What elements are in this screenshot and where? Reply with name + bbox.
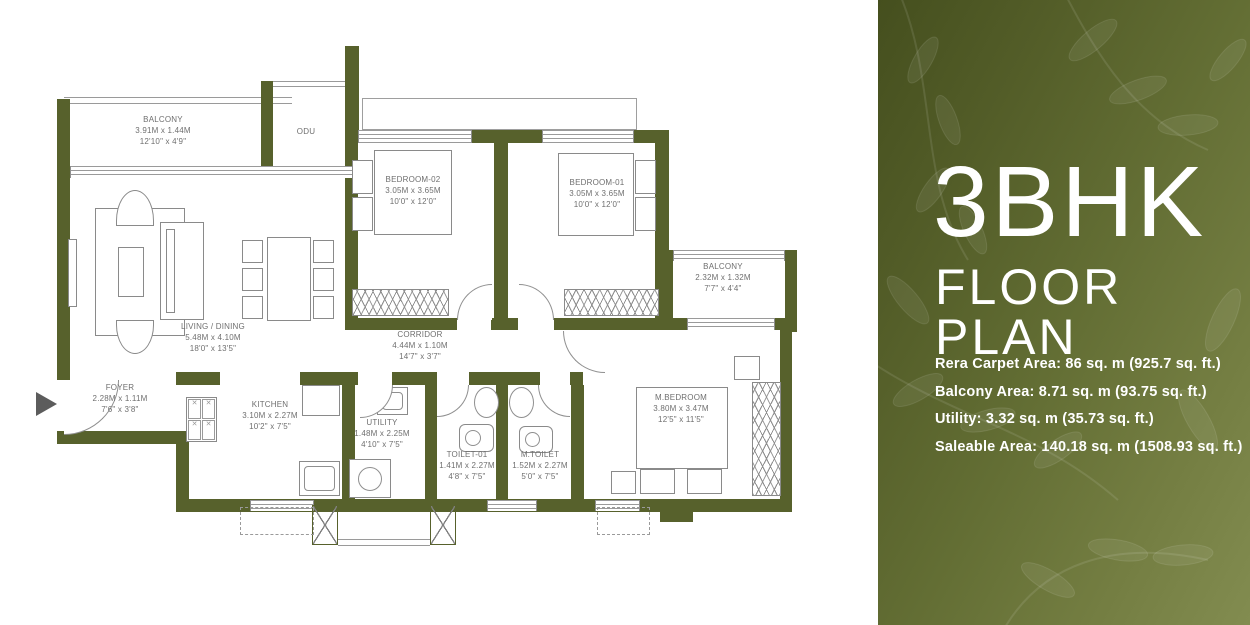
- dining-chair: [242, 296, 263, 319]
- plan-type-title: 3BHK: [933, 152, 1206, 252]
- window: [487, 500, 537, 511]
- wardrobe: [352, 289, 449, 316]
- chajja-outline: [362, 98, 637, 130]
- dining-table: [267, 237, 311, 321]
- room-label-utility: UTILITY1.48M x 2.25M4'10" x 7'5": [354, 418, 410, 450]
- dining-chair: [242, 268, 263, 291]
- dining-chair: [313, 240, 334, 263]
- wall: [554, 318, 655, 330]
- wash-basin: [474, 387, 499, 418]
- sink-basin: [304, 466, 335, 491]
- projection-outline: [240, 507, 314, 535]
- toilet-01-door-arc: [437, 385, 469, 417]
- room-label-balcony-top: BALCONY3.91M x 1.44M12'10" x 4'9": [135, 115, 191, 147]
- projection-outline: [597, 507, 650, 535]
- bedside-table: [635, 197, 656, 231]
- dining-chair: [313, 268, 334, 291]
- wc-seat: [525, 432, 540, 447]
- dining-chair: [242, 240, 263, 263]
- wall: [571, 385, 584, 512]
- room-label-corridor: CORRIDOR4.44M x 1.10M14'7" x 3'7": [392, 330, 448, 362]
- room-label-toilet-01: TOILET-011.41M x 2.27M4'8" x 7'5": [439, 450, 495, 482]
- armchair: [116, 320, 154, 354]
- duct-shaft: [312, 505, 338, 545]
- floor-plan: ✕✕✕✕ BALCONY3.91M x 1.44M12'10" x 4'9" O…: [0, 0, 878, 625]
- bedside-table: [611, 471, 636, 494]
- balcony-railing: [64, 97, 292, 104]
- odu-railing: [273, 81, 353, 87]
- room-label-bedroom-01: BEDROOM-013.05M x 3.65M10'0" x 12'0": [569, 178, 625, 210]
- room-label-foyer: FOYER2.28M x 1.11M7'6" x 3'8": [93, 383, 148, 415]
- m-toilet-door-arc: [538, 385, 570, 417]
- hob-burners: ✕✕✕✕: [186, 397, 217, 442]
- door-opening: [437, 372, 469, 385]
- wall: [494, 133, 508, 330]
- pillow: [687, 469, 722, 494]
- balcony-area: Balcony Area: 8.71 sq. m (93.75 sq. ft.): [935, 379, 1242, 407]
- pillow: [640, 469, 675, 494]
- toilet-wc: [459, 424, 494, 452]
- plan-subtitle: FLOOR PLAN: [935, 262, 1250, 362]
- window: [358, 130, 472, 143]
- wardrobe: [564, 289, 659, 316]
- dresser: [734, 356, 760, 380]
- wall: [491, 318, 518, 330]
- wall: [660, 512, 693, 522]
- armchair: [116, 190, 154, 226]
- toilet-wc: [519, 426, 553, 453]
- utility-area: Utility: 3.32 sq. m (35.73 sq. ft.): [935, 406, 1242, 434]
- m-bedroom-door-arc: [563, 331, 605, 373]
- bedside-table: [635, 160, 656, 194]
- duct-shaft: [430, 505, 456, 545]
- door-opening: [358, 372, 392, 385]
- entrance-arrow-icon: [36, 392, 57, 416]
- kitchen-counter: [302, 385, 340, 416]
- window: [687, 318, 775, 330]
- window: [542, 130, 634, 143]
- room-label-kitchen: KITCHEN3.10M x 2.27M10'2" x 7'5": [242, 400, 298, 432]
- wall: [775, 318, 797, 330]
- info-panel: 3BHK FLOOR PLAN Rera Carpet Area: 86 sq.…: [878, 0, 1250, 625]
- wall: [425, 385, 437, 499]
- room-label-living-dining: LIVING / DINING5.48M x 4.10M18'0" x 13'5…: [181, 322, 245, 354]
- wall: [176, 372, 220, 385]
- wall: [345, 318, 457, 330]
- bedroom-02-door-arc: [457, 284, 492, 320]
- wash-basin: [509, 387, 534, 418]
- bedside-table: [352, 160, 373, 194]
- washer-drum: [358, 467, 382, 491]
- dining-chair: [313, 296, 334, 319]
- wall: [345, 46, 359, 135]
- wc-seat: [465, 430, 481, 446]
- room-label-m-toilet: M.TOILET1.52M x 2.27M5'0" x 7'5": [512, 450, 568, 482]
- wall: [261, 81, 273, 178]
- wall: [655, 318, 687, 330]
- room-label-balcony-right: BALCONY2.32M x 1.32M7'7" x 4'4": [695, 262, 751, 294]
- shaft-railing: [338, 539, 430, 546]
- saleable-area: Saleable Area: 140.18 sq. m (1508.93 sq.…: [935, 434, 1242, 462]
- coffee-table: [118, 247, 144, 297]
- sofa-cushion: [166, 229, 175, 313]
- wardrobe: [752, 382, 781, 496]
- wall: [780, 330, 792, 512]
- kitchen-sink: [299, 461, 340, 496]
- room-label-odu: ODU: [297, 127, 315, 138]
- door-opening: [540, 372, 570, 385]
- bedroom-01-door-arc: [519, 284, 554, 320]
- bedside-table: [352, 197, 373, 231]
- area-details: Rera Carpet Area: 86 sq. m (925.7 sq. ft…: [935, 351, 1242, 461]
- window: [70, 166, 354, 178]
- rera-carpet-area: Rera Carpet Area: 86 sq. m (925.7 sq. ft…: [935, 351, 1242, 379]
- wall: [300, 372, 342, 385]
- tv-unit: [68, 239, 77, 307]
- washing-machine: [349, 459, 391, 498]
- room-label-m-bedroom: M.BEDROOM3.80M x 3.47M12'5" x 11'5": [653, 393, 709, 425]
- room-label-bedroom-02: BEDROOM-023.05M x 3.65M10'0" x 12'0": [385, 175, 441, 207]
- window: [673, 250, 785, 261]
